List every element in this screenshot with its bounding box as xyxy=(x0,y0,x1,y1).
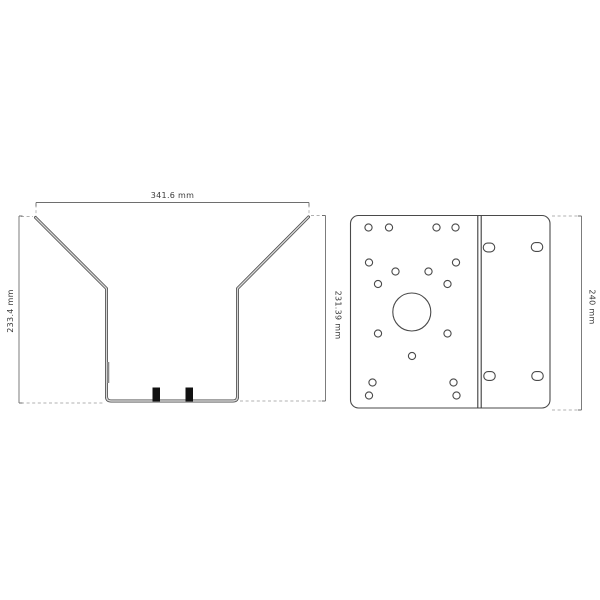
funnel-profile-core xyxy=(36,217,309,401)
hole xyxy=(365,224,372,231)
plate-height-dimension-line xyxy=(578,216,582,410)
funnel-profile xyxy=(36,217,309,401)
hole xyxy=(369,379,376,386)
funnel-extension-lines xyxy=(21,205,324,404)
slot-hole xyxy=(531,243,542,252)
drawing-page: 341.6 mm 233.4 mm 231.39 mm xyxy=(0,0,600,600)
plate-height-dimension: 240 mm xyxy=(578,216,597,410)
hole xyxy=(450,379,457,386)
width-dimension-line xyxy=(36,203,309,207)
plate-body xyxy=(351,216,551,409)
hole xyxy=(453,392,460,399)
left-height-dimension-label: 233.4 mm xyxy=(6,289,15,332)
funnel-bracket-view: 341.6 mm 233.4 mm 231.39 mm xyxy=(6,191,343,403)
plate-extension-lines xyxy=(552,216,579,410)
hole xyxy=(385,224,392,231)
mounting-tabs xyxy=(153,388,194,402)
technical-drawing-canvas: 341.6 mm 233.4 mm 231.39 mm xyxy=(0,0,600,600)
hole xyxy=(365,392,372,399)
hole xyxy=(444,330,451,337)
right-height-dimension: 231.39 mm xyxy=(322,216,343,402)
hole xyxy=(425,268,432,275)
hole xyxy=(408,352,415,359)
plate-height-dimension-label: 240 mm xyxy=(588,289,597,324)
slot-hole xyxy=(532,372,543,381)
hole xyxy=(365,259,372,266)
slot-hole xyxy=(484,372,495,381)
slot-hole xyxy=(483,243,494,252)
hole xyxy=(452,259,459,266)
width-dimension: 341.6 mm xyxy=(36,191,309,207)
width-dimension-label: 341.6 mm xyxy=(151,191,194,200)
funnel-profile-outer xyxy=(36,217,309,401)
mounting-tab xyxy=(186,388,194,402)
mounting-tab xyxy=(153,388,161,402)
right-height-dimension-label: 231.39 mm xyxy=(334,291,343,340)
hole xyxy=(374,330,381,337)
center-hole xyxy=(393,293,431,331)
left-height-dimension: 233.4 mm xyxy=(6,216,23,403)
hole xyxy=(433,224,440,231)
mounting-plate-view: 240 mm xyxy=(351,216,597,411)
left-height-dimension-line xyxy=(19,216,23,403)
hole xyxy=(444,280,451,287)
hole xyxy=(392,268,399,275)
right-height-dimension-line xyxy=(322,216,326,402)
hole xyxy=(452,224,459,231)
hole xyxy=(374,280,381,287)
